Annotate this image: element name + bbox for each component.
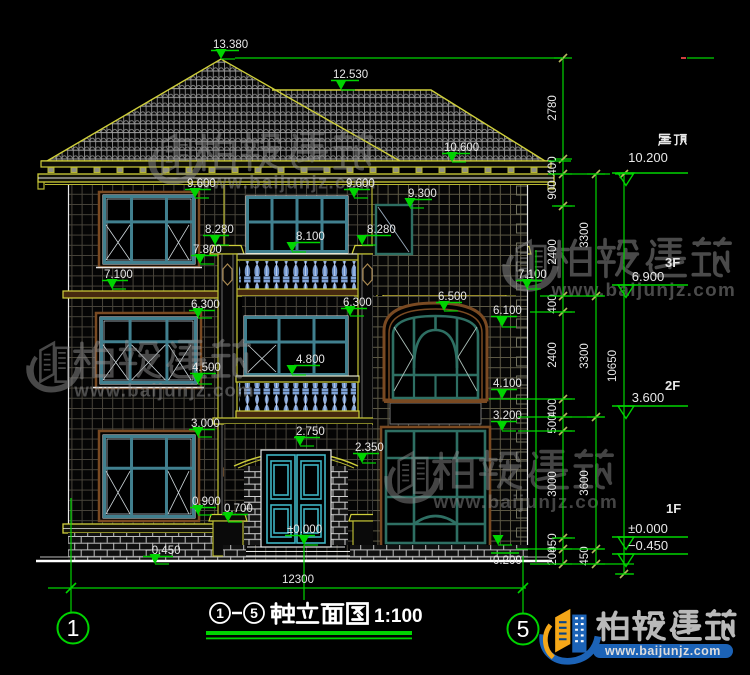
svg-text:3300: 3300 (579, 222, 591, 248)
svg-text:3.600: 3.600 (632, 390, 665, 405)
svg-text:3000: 3000 (547, 471, 559, 497)
svg-text:www.baijunjz.com: www.baijunjz.com (73, 380, 255, 401)
svg-text:2780: 2780 (547, 95, 559, 121)
svg-text:5: 5 (517, 616, 530, 642)
svg-text:400: 400 (547, 156, 559, 175)
svg-text:8.100: 8.100 (296, 231, 325, 243)
svg-text:12300: 12300 (282, 574, 314, 586)
svg-text:1:100: 1:100 (374, 606, 423, 627)
svg-text:2F: 2F (665, 378, 680, 393)
svg-text:4.800: 4.800 (296, 354, 325, 366)
svg-text:12.530: 12.530 (333, 69, 368, 81)
svg-text:3.200: 3.200 (493, 410, 522, 422)
svg-text:3300: 3300 (579, 343, 591, 369)
svg-text:1F: 1F (666, 501, 681, 516)
svg-text:2.350: 2.350 (355, 442, 384, 454)
svg-text:10.200: 10.200 (628, 150, 668, 165)
svg-text:4.500: 4.500 (192, 362, 221, 374)
svg-text:2400: 2400 (547, 239, 559, 265)
svg-text:2400: 2400 (547, 342, 559, 368)
svg-text:3600: 3600 (579, 470, 591, 496)
svg-text:8.280: 8.280 (205, 224, 234, 236)
svg-text:4.100: 4.100 (493, 378, 522, 390)
svg-text:0.200: 0.200 (493, 555, 522, 567)
svg-text:±0.000: ±0.000 (287, 524, 322, 536)
svg-text:6.100: 6.100 (493, 305, 522, 317)
svg-text:900: 900 (547, 180, 559, 199)
svg-text:1: 1 (67, 615, 80, 641)
svg-text:6.900: 6.900 (632, 269, 665, 284)
svg-text:5: 5 (250, 605, 258, 621)
svg-text:3F: 3F (665, 255, 680, 270)
svg-text:1: 1 (216, 605, 224, 621)
svg-text:10650: 10650 (607, 350, 619, 382)
svg-text:±0.000: ±0.000 (628, 521, 668, 536)
svg-text:www.baijunjz.com: www.baijunjz.com (604, 644, 721, 658)
svg-text:−0.450: −0.450 (628, 538, 668, 553)
svg-text:400: 400 (547, 294, 559, 313)
svg-text:8.280: 8.280 (367, 224, 396, 236)
